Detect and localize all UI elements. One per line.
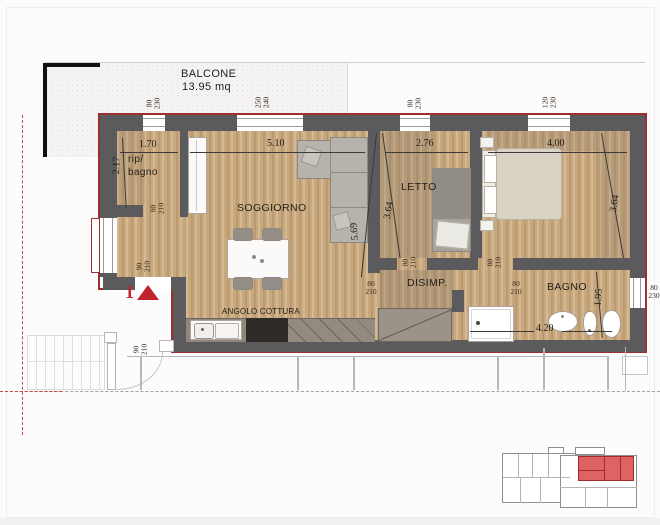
door-label-disimp: 80210: [362, 280, 380, 295]
keyplan-bump-2: [575, 447, 605, 455]
bed-double-blanket: [496, 148, 562, 220]
dim-camera-w: 4.00: [547, 138, 565, 149]
staircase: [27, 335, 105, 390]
dimline-letto: [385, 152, 468, 153]
terrace-post-3: [353, 356, 355, 390]
section-dashed-line: [0, 391, 660, 392]
window-left-frame: [91, 218, 100, 273]
wall-rip-bottom: [117, 205, 143, 217]
keyplan-line-4: [503, 477, 570, 478]
keyplan-unit-highlight: [578, 456, 634, 481]
cabinet: [188, 137, 207, 214]
balcony-parapet-horizontal: [43, 63, 100, 67]
kitchen-cabinets-hatched: [288, 318, 375, 342]
keyplan-line-8: [585, 488, 586, 508]
staircase-rail: [27, 361, 103, 362]
landing-door-jamb-1: [104, 332, 117, 343]
terrace-post-2: [297, 356, 299, 390]
keyplan-unit-line-3: [579, 470, 604, 471]
door-label-rip: 80210: [150, 197, 165, 221]
landing-door-jamb-2: [159, 340, 174, 352]
chair-2: [262, 228, 282, 241]
balcony-edge-line: [347, 63, 348, 115]
wall-bedrooms-2: [427, 258, 478, 270]
window-top-2: [237, 115, 303, 131]
dim-bagno-w: 4.20: [536, 323, 554, 334]
dim-sogg-w: 5.10: [267, 138, 285, 149]
dimline-camera: [488, 152, 627, 153]
dining-table: [227, 239, 289, 279]
landing-door-leaf: [107, 343, 116, 390]
window-bagno: [630, 278, 645, 308]
soggiorno-label: SOGGIORNO: [237, 202, 307, 214]
terrace-post-4: [497, 356, 499, 390]
window-top-1: [143, 115, 165, 131]
dim-sogg-diag: 5.69: [348, 222, 361, 241]
shadow-disimp: [380, 270, 452, 308]
balcony-floor-left: [45, 63, 100, 157]
window-label-top-1: 80230: [146, 92, 161, 116]
upper-floor-edge-line: [45, 62, 645, 63]
section-dashed-line-red: [0, 391, 62, 392]
wall-recess-vert: [173, 277, 186, 352]
dimline-sogg: [190, 152, 365, 153]
bagno-label: BAGNO: [547, 281, 587, 293]
floor-plan: BALCONE 13.95 mq: [0, 0, 660, 525]
cabinet-line: [196, 140, 197, 211]
dim-rip-w: 1.70: [139, 139, 157, 150]
wall-right: [630, 115, 645, 352]
sink-drain-dot: [201, 328, 204, 331]
chair-3: [233, 277, 253, 290]
dim-letto-w: 2.76: [416, 138, 434, 149]
keyplan-line-7: [560, 487, 637, 488]
rip-label-line1: rip/: [128, 154, 144, 165]
dim-rip-h: 2.17: [111, 157, 123, 175]
bidet: [583, 311, 597, 336]
table-decor-1: [252, 255, 256, 259]
chair-1: [233, 228, 253, 241]
keyplan-unit-line-1: [604, 457, 605, 480]
sink-drainer: [215, 323, 239, 339]
terrace-post-5: [543, 348, 545, 390]
shower-drain: [476, 321, 480, 325]
window-left: [100, 218, 117, 273]
window-top-4: [528, 115, 570, 131]
balcony-area-label: 13.95 mq: [182, 81, 231, 93]
keyplan-unit-line-2: [620, 457, 621, 480]
page-bottom-strip: [0, 518, 660, 525]
bed-single-blanket: [433, 169, 470, 219]
washbasin-dot: [561, 315, 564, 318]
window-label-top-2: 250240: [255, 91, 270, 115]
door-label-camera: 80210: [487, 251, 502, 275]
sofa-cushion-line-2: [331, 207, 367, 208]
door-label-bagno: 80210: [507, 280, 525, 295]
sofa-cushion-line-1: [331, 172, 367, 173]
door-label-entrance: 90210: [136, 255, 151, 279]
cooktop: [246, 318, 288, 342]
keyplan-line-2: [532, 454, 533, 478]
kitchen-label: ANGOLO COTTURA: [222, 307, 300, 316]
keyplan-line-6: [540, 478, 541, 503]
chair-4: [262, 277, 282, 290]
lower-wall-line: [625, 347, 626, 391]
wall-letto-camera: [470, 131, 482, 258]
nightstand-1: [480, 137, 494, 148]
keyplan-line-3: [548, 454, 549, 478]
letto-label: LETTO: [401, 181, 437, 193]
wall-bedrooms-3: [513, 258, 630, 270]
window-top-3: [400, 115, 430, 131]
window-label-top-4: 120230: [542, 91, 557, 115]
terrace-post-6: [607, 356, 609, 390]
keyplan-line-1: [518, 454, 519, 478]
door-label-landing: 90210: [133, 338, 148, 362]
window-label-top-3: 80230: [407, 92, 422, 116]
keyplan-bump-1: [548, 447, 564, 454]
window-label-bagno: 80230: [646, 284, 660, 299]
toilet: [602, 310, 621, 338]
sink-bowl: [194, 323, 214, 339]
bed-single-pillow: [435, 220, 471, 249]
wall-rip-right: [180, 131, 188, 217]
dimline-bagno-1: [470, 331, 534, 332]
balcony-parapet-vertical: [43, 63, 47, 157]
nightstand-2: [480, 220, 494, 231]
door-label-letto: 80210: [402, 251, 417, 275]
keyplan-line-9: [607, 488, 608, 508]
wall-bedrooms-1: [368, 258, 397, 270]
property-dashed-line: [22, 115, 23, 435]
disimp-label: DISIMP.: [407, 277, 448, 289]
balcony-label: BALCONE: [181, 68, 236, 80]
table-decor-2: [260, 259, 264, 263]
unit-number: 1: [125, 282, 134, 303]
terrace-edge: [127, 356, 609, 357]
dim-bagno-h: 1.95: [593, 288, 605, 306]
unit-marker-triangle-icon: [137, 285, 159, 300]
rip-label-line2: bagno: [128, 167, 158, 178]
dimline-rip: [120, 152, 178, 153]
dimline-bagno-2: [562, 331, 612, 332]
outline-right: [645, 113, 647, 353]
keyplan-line-5: [520, 478, 521, 503]
